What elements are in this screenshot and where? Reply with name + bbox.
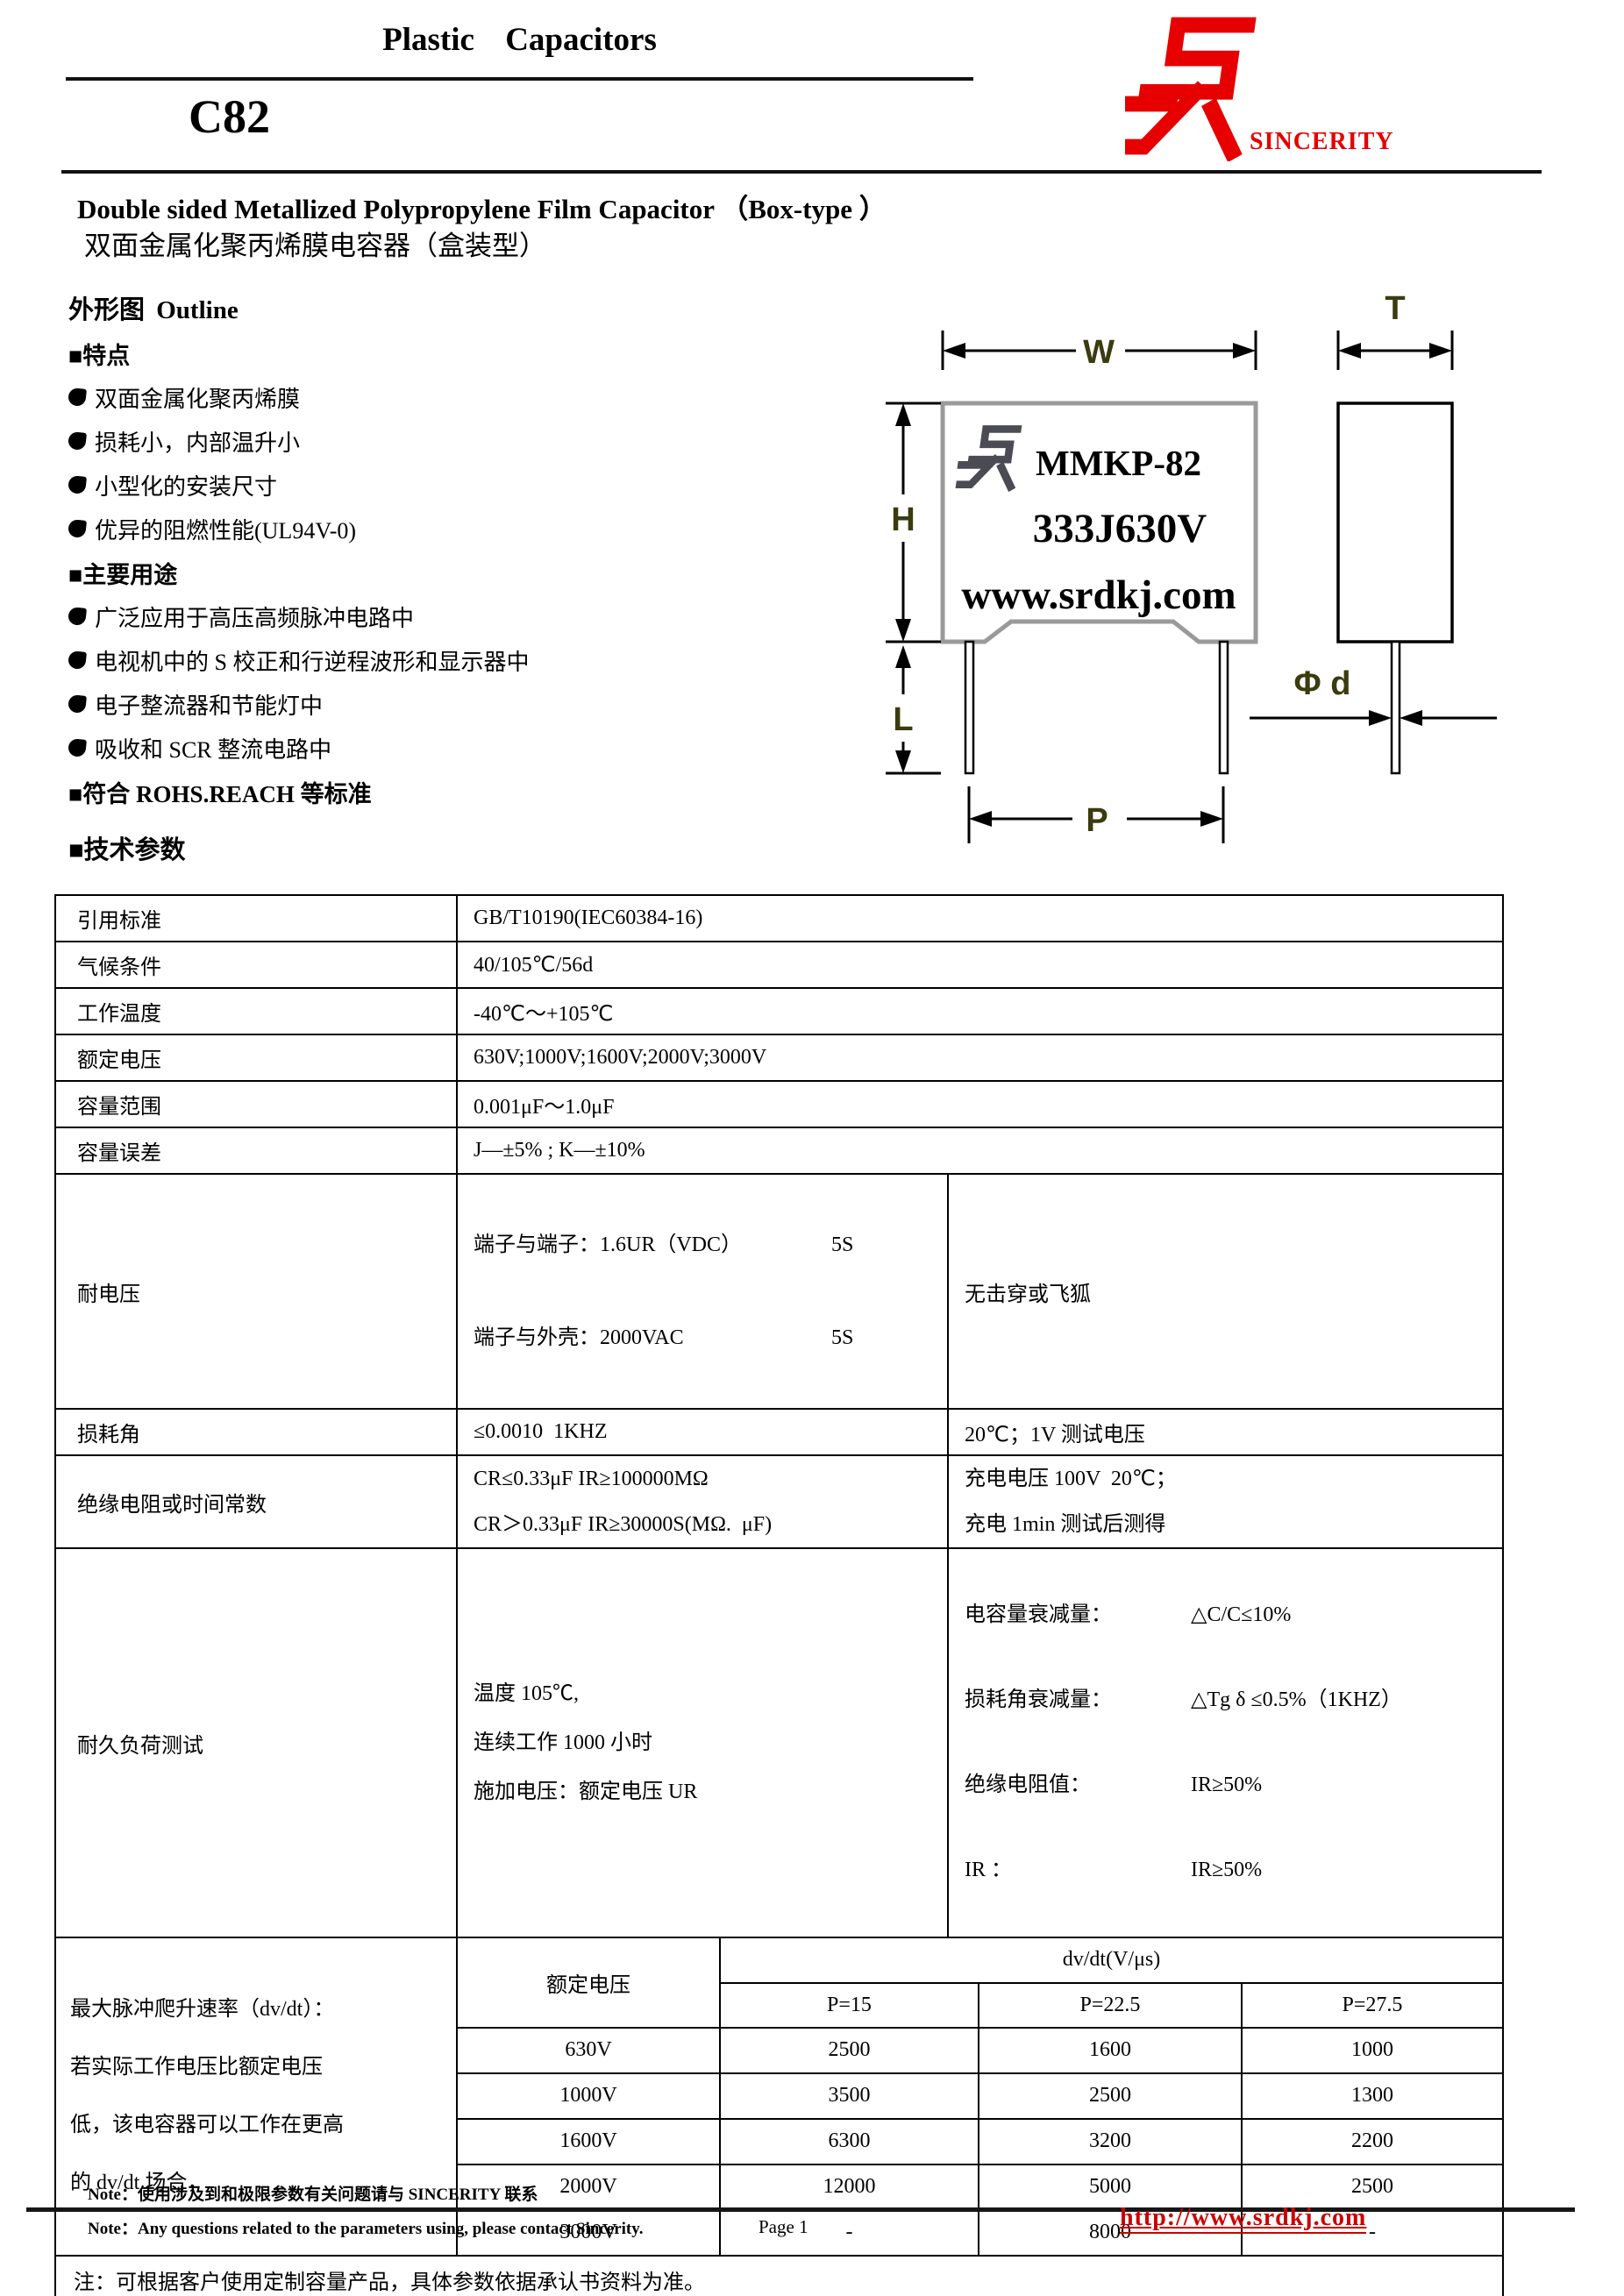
param-value: ≤0.0010 1KHZ xyxy=(457,1409,948,1455)
param-value: 40/105℃/56d xyxy=(457,942,1503,988)
brand-name: SINCERITY xyxy=(1250,128,1394,156)
feature-text: 双面金属化聚丙烯膜 xyxy=(95,381,300,414)
tech-tables: 引用标准 GB/T10190(IEC60384-16) 气候条件 40/105℃… xyxy=(54,894,1504,2296)
param-label: 绝缘电阻或时间常数 xyxy=(55,1455,457,1548)
feature-text: 优异的阻燃性能(UL94V-0) xyxy=(95,513,356,545)
dvdt-value: 3200 xyxy=(979,2119,1242,2164)
param-label: 容量误差 xyxy=(55,1127,457,1174)
bullet-icon xyxy=(68,519,87,538)
param-value: GB/T10190(IEC60384-16) xyxy=(457,895,1503,942)
application-item: 电视机中的 S 校正和行逆程波形和显示器中 xyxy=(68,638,858,682)
product-title-en: Double sided Metallized Polypropylene Fi… xyxy=(77,187,887,226)
param-value: J—±5% ; K—±10% xyxy=(457,1127,1503,1174)
table-row: 额定电压 630V;1000V;1600V;2000V;3000V xyxy=(55,1034,1503,1081)
bullet-icon xyxy=(68,475,87,494)
model-number: C82 xyxy=(189,89,270,144)
website-link[interactable]: http://www.srdkj.com xyxy=(1120,2204,1366,2234)
dvdt-value: 6300 xyxy=(720,2119,979,2164)
dvdt-value: 1000 xyxy=(1242,2028,1503,2073)
param-subvalue: 损耗角衰减量： xyxy=(965,1681,1191,1719)
dim-label-d: Φ d xyxy=(1294,665,1351,702)
param-note: 20℃；1V 测试电压 xyxy=(948,1409,1503,1455)
bullet-icon xyxy=(68,431,87,451)
feature-text: 小型化的安装尺寸 xyxy=(95,469,277,501)
table-row: 容量范围 0.001μF～1.0μF xyxy=(55,1081,1503,1127)
dvdt-voltage: 630V xyxy=(457,2028,720,2073)
application-text: 吸收和 SCR 整流电路中 xyxy=(95,732,331,764)
param-label: 额定电压 xyxy=(55,1034,457,1081)
body-marking-series: MMKP-82 xyxy=(1036,443,1201,483)
document-title: Plastic Capacitors xyxy=(66,21,973,59)
param-subvalue: IR≥50% xyxy=(1191,1859,1262,1881)
dim-label-p: P xyxy=(1086,802,1108,839)
applications-heading: ■主要用途 xyxy=(68,551,858,594)
compliance-heading: ■符合 ROHS.REACH 等标准 xyxy=(68,770,858,814)
dvdt-value: 12000 xyxy=(720,2164,979,2210)
dvdt-value: 2500 xyxy=(1242,2164,1503,2210)
param-label: 容量范围 xyxy=(55,1081,457,1127)
dvdt-value: 1600 xyxy=(979,2028,1242,2073)
param-subvalue: 5S xyxy=(831,1326,853,1349)
dim-label-l: L xyxy=(893,701,913,738)
table-row: 引用标准 GB/T10190(IEC60384-16) xyxy=(55,895,1503,942)
body-marking-url: www.srdkj.com xyxy=(961,572,1236,618)
features-heading: ■特点 xyxy=(68,331,858,375)
param-subvalue: 端子与外壳：2000VAC xyxy=(474,1315,831,1361)
dim-label-h: H xyxy=(891,501,915,538)
param-subvalue: IR≥50% xyxy=(1191,1774,1262,1796)
dvdt-unit-header: dv/dt(V/μs) xyxy=(720,1937,1503,1983)
footer-note-cn: Note：使用涉及到和极限参数有关问题请与 SINCERITY 联系 xyxy=(88,2181,538,2205)
header-rule-top xyxy=(66,77,973,81)
feature-item: 双面金属化聚丙烯膜 xyxy=(68,375,858,419)
page-number: Page 1 xyxy=(759,2216,808,2238)
header-rule-bottom xyxy=(61,170,1542,174)
body-marking-code: 333J630V xyxy=(1033,506,1207,551)
application-text: 广泛应用于高压高频脉冲电路中 xyxy=(95,601,414,633)
table-row: 绝缘电阻或时间常数 CR≤0.33μF IR≥100000MΩ CR＞0.33μ… xyxy=(55,1455,1503,1548)
dvdt-value: 2500 xyxy=(979,2073,1242,2119)
application-text: 电视机中的 S 校正和行逆程波形和显示器中 xyxy=(95,644,529,677)
feature-item: 小型化的安装尺寸 xyxy=(68,463,858,507)
bullet-icon xyxy=(68,607,87,626)
dvdt-value: 1300 xyxy=(1242,2073,1503,2119)
application-item: 吸收和 SCR 整流电路中 xyxy=(68,726,858,770)
sincerity-logo-icon xyxy=(1125,11,1257,166)
dvdt-voltage: 1600V xyxy=(457,2119,720,2164)
param-value: 端子与端子：1.6UR（VDC）5S 端子与外壳：2000VAC5S xyxy=(457,1174,948,1409)
table-row: 耐久负荷测试 温度 105℃, 连续工作 1000 小时 施加电压：额定电压 U… xyxy=(55,1548,1503,1937)
dim-label-w: W xyxy=(1083,334,1115,371)
dvdt-value: 3500 xyxy=(720,2073,979,2119)
dvdt-voltage: 1000V xyxy=(457,2073,720,2119)
param-label: 耐久负荷测试 xyxy=(55,1548,457,1937)
table-row: 耐电压 端子与端子：1.6UR（VDC）5S 端子与外壳：2000VAC5S 无… xyxy=(55,1174,1503,1409)
table-row: 容量误差 J—±5% ; K—±10% xyxy=(55,1127,1503,1174)
table-footnote: 注：可根据客户使用定制容量产品，具体参数依据承认书资料为准。 xyxy=(55,2256,1503,2296)
dvdt-value: 2500 xyxy=(720,2028,979,2073)
param-note: 电容量衰减量：△C/C≤10% 损耗角衰减量：△Tg δ ≤0.5%（1KHZ）… xyxy=(948,1548,1503,1937)
dvdt-voltage-header: 额定电压 xyxy=(457,1937,720,2028)
param-value: 温度 105℃, 连续工作 1000 小时 施加电压：额定电压 UR xyxy=(457,1548,948,1937)
param-label: 引用标准 xyxy=(55,895,457,942)
param-label: 工作温度 xyxy=(55,988,457,1034)
table-row: 最大脉冲爬升速率（dv/dt）： 若实际工作电压比额定电压 低，该电容器可以工作… xyxy=(55,1937,1503,1983)
bullet-icon xyxy=(68,738,87,757)
param-subvalue: △Tg δ ≤0.5%（1KHZ） xyxy=(1191,1688,1402,1711)
application-text: 电子整流器和节能灯中 xyxy=(95,688,323,721)
outline-heading: 外形图 Outline xyxy=(68,289,239,326)
feature-item: 损耗小，内部温升小 xyxy=(68,419,858,463)
dvdt-pitch-header: P=15 xyxy=(720,1983,979,2028)
bullet-icon xyxy=(68,387,87,407)
param-subvalue: 电容量衰减量： xyxy=(965,1596,1191,1634)
table-row: 工作温度 -40℃～+105℃ xyxy=(55,988,1503,1034)
param-subvalue: △C/C≤10% xyxy=(1191,1603,1291,1626)
param-subvalue: 绝缘电阻值： xyxy=(965,1766,1191,1804)
tech-heading: ■技术参数 xyxy=(68,829,186,866)
param-value: 630V;1000V;1600V;2000V;3000V xyxy=(457,1034,1503,1081)
table-row: 注：可根据客户使用定制容量产品，具体参数依据承认书资料为准。 xyxy=(55,2256,1503,2296)
param-label: 损耗角 xyxy=(55,1409,457,1455)
table-row: 损耗角 ≤0.0010 1KHZ 20℃；1V 测试电压 xyxy=(55,1409,1503,1455)
param-note: 充电电压 100V 20℃； 充电 1min 测试后测得 xyxy=(948,1455,1503,1548)
param-value: 0.001μF～1.0μF xyxy=(457,1081,1503,1127)
param-note: 无击穿或飞狐 xyxy=(948,1174,1503,1409)
product-title-cn: 双面金属化聚丙烯膜电容器（盒装型） xyxy=(84,224,546,263)
param-label: 耐电压 xyxy=(55,1174,457,1409)
dvdt-table: 最大脉冲爬升速率（dv/dt）： 若实际工作电压比额定电压 低，该电容器可以工作… xyxy=(54,1937,1504,2296)
outline-diagram: W MMKP-82 333J630V www.srdkj.com H xyxy=(864,282,1504,861)
param-value: -40℃～+105℃ xyxy=(457,988,1503,1034)
param-subvalue: IR ： xyxy=(965,1852,1191,1889)
parameters-table: 引用标准 GB/T10190(IEC60384-16) 气候条件 40/105℃… xyxy=(54,894,1504,1938)
bullet-icon xyxy=(68,694,87,714)
footer-note-en: Note：Any questions related to the parame… xyxy=(88,2215,643,2239)
table-row: 气候条件 40/105℃/56d xyxy=(55,942,1503,988)
feature-item: 优异的阻燃性能(UL94V-0) xyxy=(68,507,858,551)
param-value: CR≤0.33μF IR≥100000MΩ CR＞0.33μF IR≥30000… xyxy=(457,1455,948,1548)
application-item: 广泛应用于高压高频脉冲电路中 xyxy=(68,594,858,638)
bullet-icon xyxy=(68,650,87,670)
dvdt-value: 5000 xyxy=(979,2164,1242,2210)
param-label: 气候条件 xyxy=(55,942,457,988)
dvdt-pitch-header: P=22.5 xyxy=(979,1983,1242,2028)
application-item: 电子整流器和节能灯中 xyxy=(68,682,858,726)
param-subvalue: 端子与端子：1.6UR（VDC） xyxy=(474,1222,831,1268)
dvdt-pitch-header: P=27.5 xyxy=(1242,1983,1503,2028)
feature-text: 损耗小，内部温升小 xyxy=(95,425,300,458)
param-subvalue: 5S xyxy=(831,1233,853,1256)
feature-list: ■特点 双面金属化聚丙烯膜 损耗小，内部温升小 小型化的安装尺寸 优异的阻燃性能… xyxy=(68,331,858,814)
dim-label-t: T xyxy=(1385,290,1405,327)
datasheet-page: Plastic Capacitors C82 SINCERITY Double … xyxy=(0,0,1624,2296)
dvdt-value: 2200 xyxy=(1242,2119,1503,2164)
